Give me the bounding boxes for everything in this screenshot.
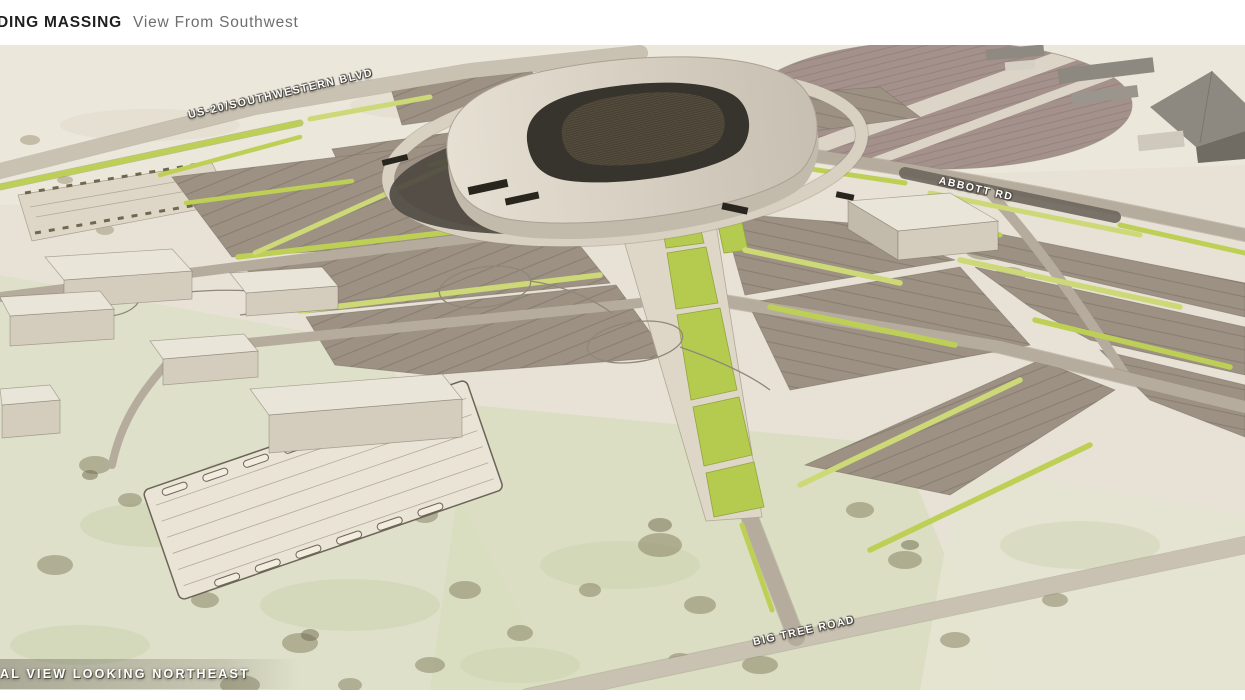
page-subtitle: View From Southwest: [133, 14, 299, 32]
header: DING MASSING View From Southwest: [0, 0, 1245, 45]
site-rendering: [0, 45, 1245, 690]
bottom-margin: [0, 690, 1245, 700]
view-caption: AL VIEW LOOKING NORTHEAST: [0, 667, 250, 681]
page-title: DING MASSING: [0, 14, 122, 32]
rendering-viewport: US-20/SOUTHWESTERN BLVD ABBOTT RD BIG TR…: [0, 45, 1245, 690]
slide-page: DING MASSING View From Southwest: [0, 0, 1245, 700]
